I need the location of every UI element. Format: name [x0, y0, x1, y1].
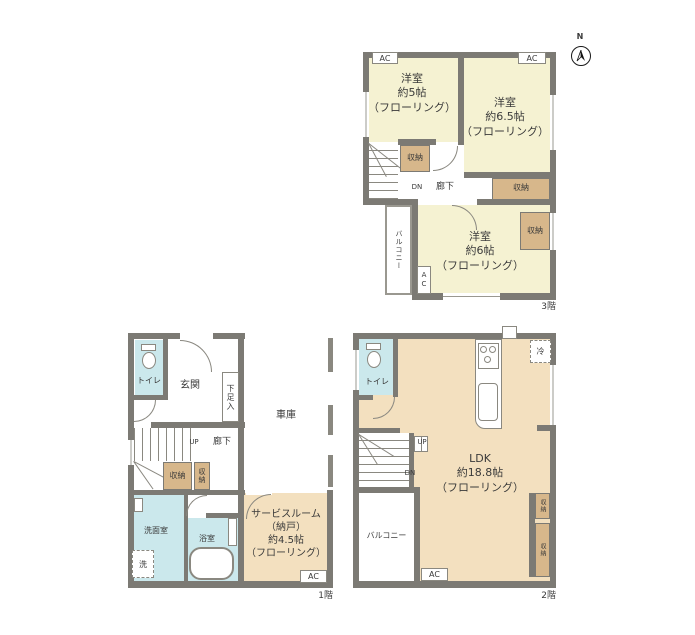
door-arc [180, 340, 212, 372]
closet-label: 収納 [195, 464, 209, 488]
door-arc [433, 146, 458, 171]
bathroom-label: 浴室 [190, 534, 224, 544]
up-label: UP [184, 438, 204, 447]
window [550, 213, 556, 250]
room-bedroom65-label: 洋室 約6.5帖 （フローリング） [455, 96, 555, 139]
ac-label: AC [429, 570, 440, 579]
sink-icon [478, 383, 498, 421]
room-ldk-label: LDK 約18.8帖 （フローリング） [428, 452, 532, 495]
window [353, 350, 359, 390]
wall [353, 581, 556, 588]
balcony-label: バルコニー [388, 215, 410, 285]
ac-label: AC [417, 267, 431, 293]
hallway-label: 廊下 [430, 182, 460, 194]
fridge-label: 冷 [537, 346, 545, 357]
compass-icon [571, 46, 591, 66]
closet-label: 収納 [400, 153, 430, 163]
closet-label: 収納 [536, 495, 549, 517]
ac-label: AC [380, 54, 391, 63]
closet-label: 収納 [163, 471, 192, 481]
closet-label: 収納 [492, 183, 550, 193]
garage-dash-line [328, 455, 333, 487]
wall [353, 333, 556, 339]
wall [353, 395, 373, 400]
toilet-tank [141, 344, 156, 351]
laundry-box: 洗 [132, 550, 154, 578]
ac-label: AC [527, 54, 538, 63]
floor2-name-label: 2階 [516, 591, 556, 603]
wall [393, 333, 398, 397]
ac-label: AC [308, 572, 319, 581]
wall [353, 428, 400, 433]
bath-counter [228, 518, 237, 546]
window [550, 365, 556, 425]
garage-label: 車庫 [261, 409, 311, 422]
closet-label: 収納 [520, 226, 550, 236]
toilet-label: トイレ [361, 377, 393, 387]
floor1-name-label: 1階 [293, 591, 333, 603]
wall [414, 493, 420, 588]
wall [163, 333, 168, 400]
closet-label: 収納 [536, 536, 549, 564]
room-bedroom6-label: 洋室 約6帖 （フローリング） [430, 230, 530, 273]
room-bedroom5-label: 洋室 約5帖 （フローリング） [362, 72, 462, 115]
garage-dash-line [328, 405, 333, 435]
toilet-tank [366, 343, 381, 350]
ac-unit-box: AC [518, 52, 546, 64]
up-label: UP [412, 438, 432, 447]
toilet-bowl-icon [367, 351, 381, 368]
dn-label: DN [406, 183, 428, 192]
door-opening [180, 333, 213, 339]
wall [537, 425, 556, 431]
stove-burner-icon [489, 346, 496, 353]
door-notch [502, 326, 517, 339]
bathtub-icon [189, 547, 234, 580]
floor-plan-canvas: バルコニー AC AC AC 洋室 約5帖 （フローリング） 洋室 約6.5帖 … [0, 0, 695, 635]
ac-unit-box: AC [372, 52, 398, 64]
compass-needle-icon [575, 50, 587, 62]
fridge-box: 冷 [530, 340, 551, 363]
stairs-3f [369, 150, 398, 204]
wall [550, 52, 556, 300]
laundry-label: 洗 [139, 559, 147, 570]
toilet-bowl-icon [142, 352, 156, 369]
door-arc [186, 495, 207, 516]
stove-burner-icon [480, 346, 487, 353]
ac-unit-box: AC [421, 568, 448, 581]
stove-burner-icon [484, 356, 491, 363]
washbasin-icon [134, 498, 143, 512]
washroom-label: 洗面室 [134, 526, 178, 536]
ac-unit-box: AC [300, 570, 327, 583]
toilet-label: トイレ [134, 376, 164, 386]
dn-label: DN [400, 469, 420, 478]
garage-dash-line [328, 338, 333, 372]
compass-north-label: N [572, 32, 588, 42]
door-arc [134, 400, 156, 422]
shoe-closet-label: 下足入 [223, 374, 238, 420]
window [443, 293, 500, 300]
floor3-name-label: 3階 [516, 302, 556, 314]
entrance-label: 玄関 [170, 379, 210, 392]
hallway-label: 廊下 [207, 437, 237, 449]
service-room-label: サービスルーム （納戸） 約4.5帖 （フローリング） [240, 508, 332, 560]
balcony-label: バルコニー [359, 531, 414, 541]
